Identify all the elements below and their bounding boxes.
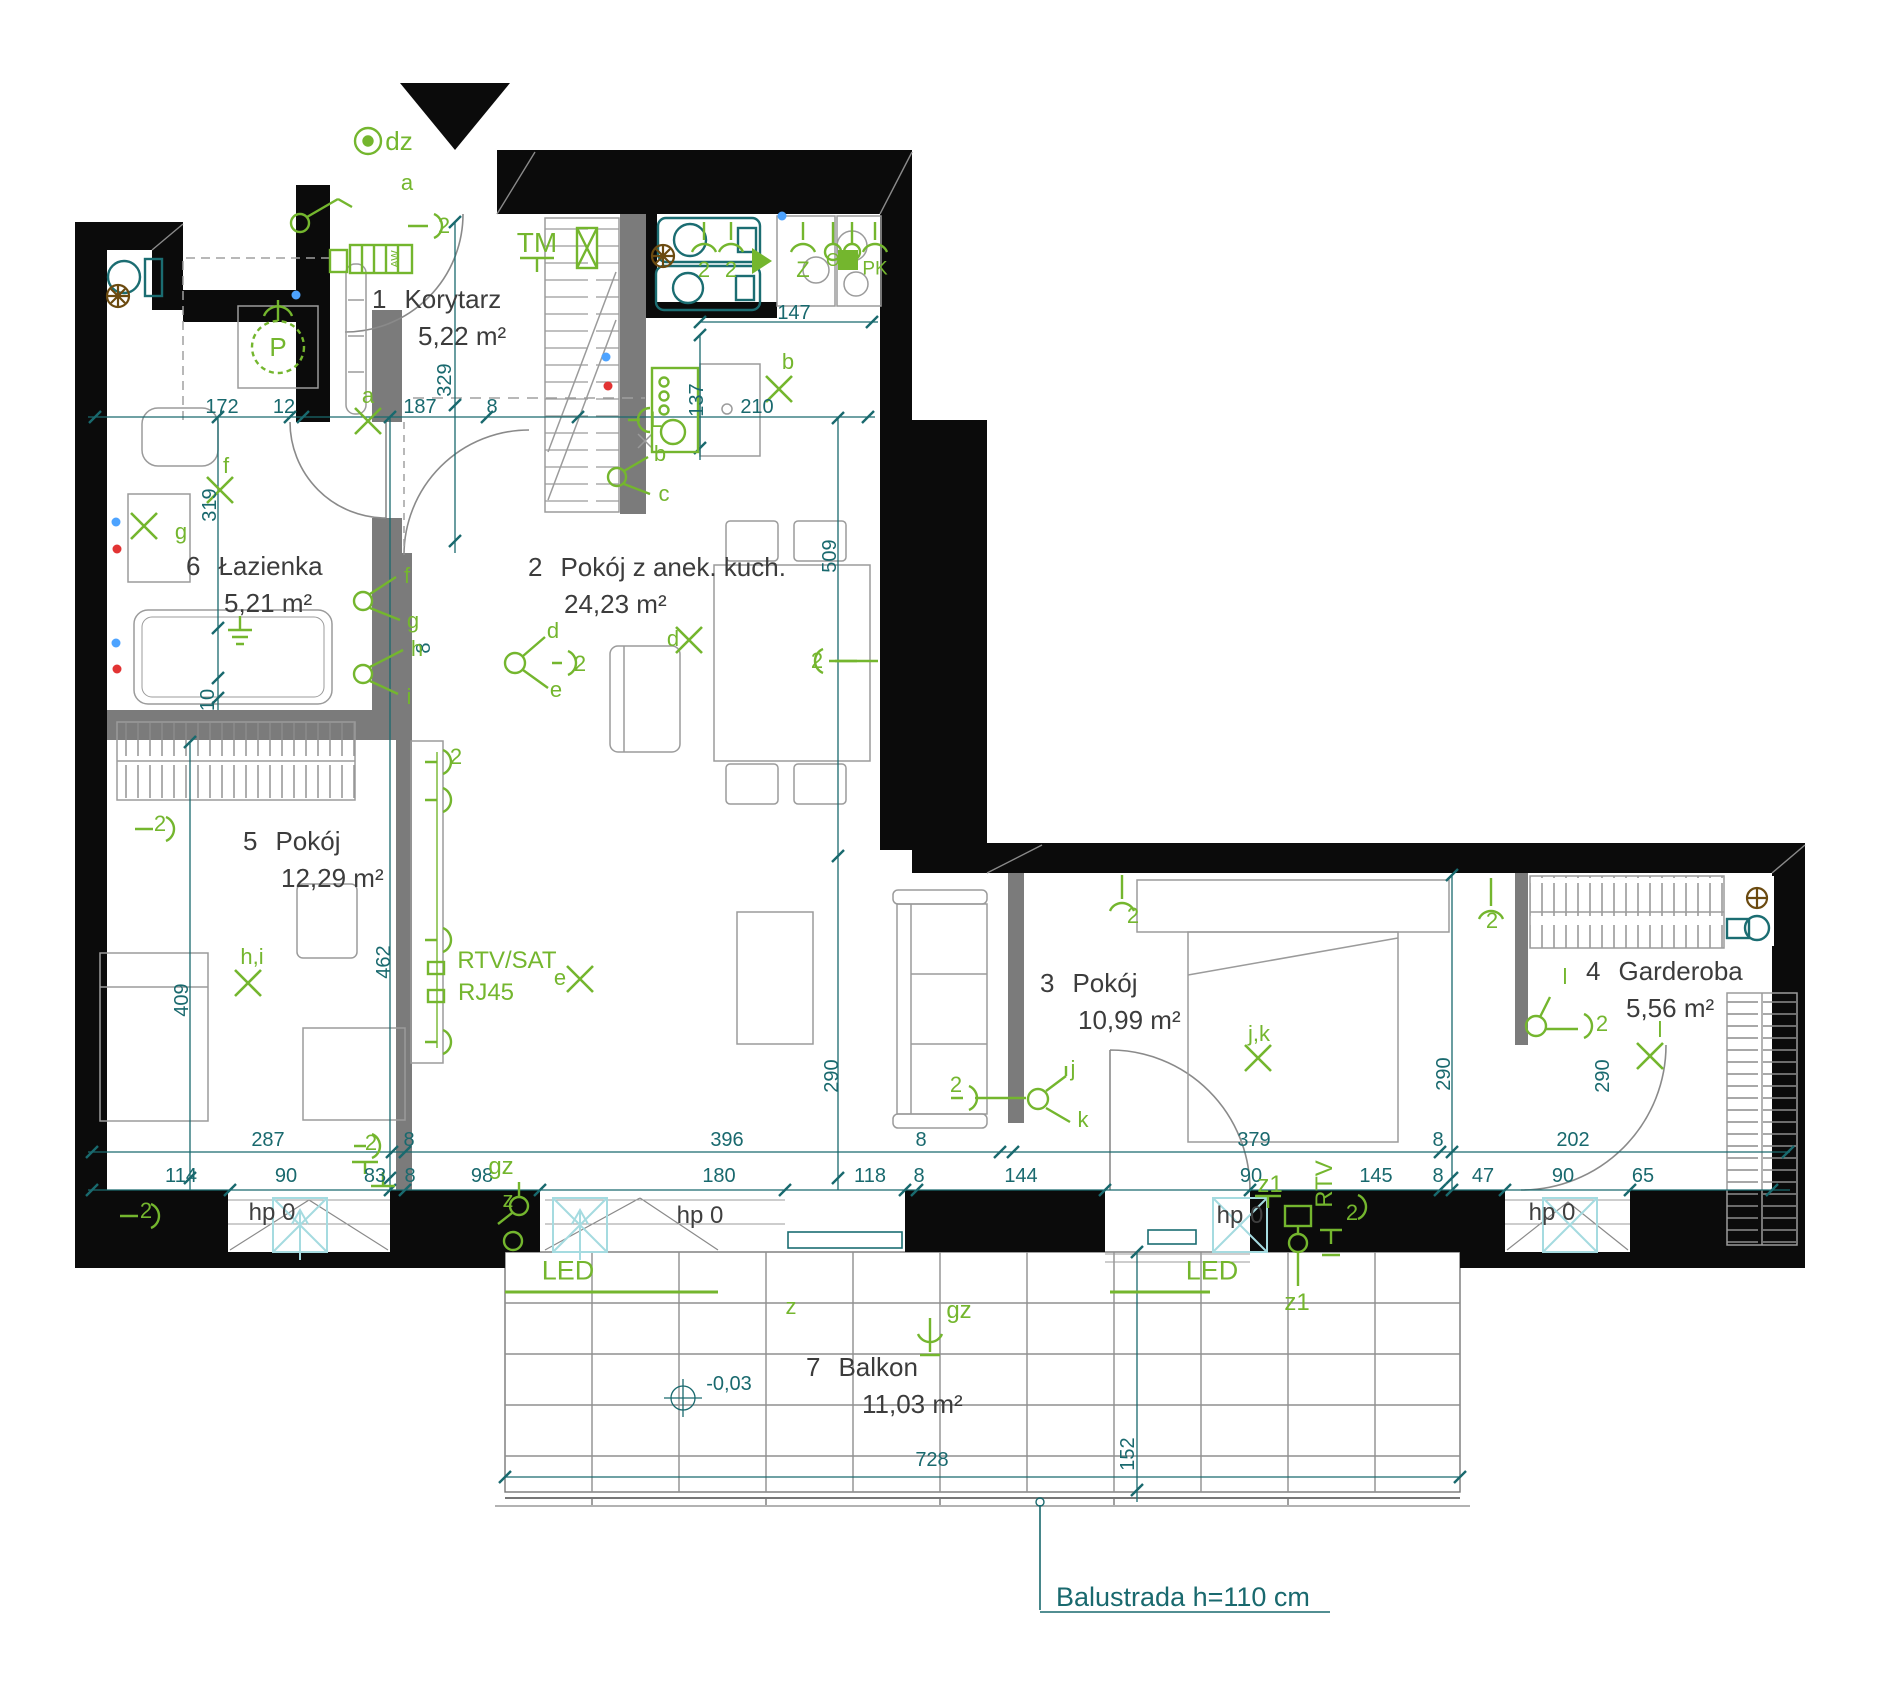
electrical-marker-label: b	[782, 351, 794, 373]
electrical-marker-label: z1	[1284, 1291, 1309, 1315]
room-label-garderoba: 4Garderoba 5,56 m²	[1586, 956, 1743, 1024]
dimension-label: 329	[435, 363, 455, 396]
electrical-marker-label: b	[654, 443, 666, 465]
room-number: 3	[1040, 968, 1054, 999]
electrical-marker-label: RTV	[1313, 1160, 1337, 1208]
electrical-marker-label: g	[175, 521, 187, 543]
electrical-marker-label: h	[411, 638, 423, 660]
electrical-marker-label: K	[846, 251, 858, 269]
electrical-marker-label: i	[407, 686, 412, 708]
dimension-label: 8	[1432, 1166, 1443, 1186]
dimension-label: 145	[1359, 1166, 1392, 1186]
room-area: 12,29 m²	[243, 863, 384, 894]
dimension-label: 180	[702, 1166, 735, 1186]
dimension-label: 12	[273, 397, 295, 417]
electrical-marker-label: 2	[811, 650, 823, 672]
electrical-marker-label: 2	[1127, 905, 1139, 927]
electrical-marker-label: L	[650, 409, 662, 431]
electrical-marker-label: 2	[450, 746, 462, 768]
electrical-marker-label: gz	[488, 1155, 513, 1179]
electrical-marker-label: d	[547, 620, 559, 642]
dimension-label: 10	[198, 689, 218, 711]
electrical-marker-label: e	[554, 967, 566, 989]
dimension-label: 287	[251, 1130, 284, 1150]
electrical-marker-label: f	[223, 455, 229, 477]
dimension-label: 118	[854, 1166, 886, 1186]
dimension-label: -0,03	[706, 1374, 752, 1394]
electrical-marker-label: O	[826, 251, 840, 269]
electrical-marker-label: a	[362, 385, 374, 407]
dimension-label: 144	[1004, 1166, 1037, 1186]
electrical-marker-label: 2	[365, 1132, 377, 1154]
labels-layer: 1Korytarz 5,22 m² 2Pokój z anek. kuch. 2…	[0, 0, 1900, 1685]
electrical-marker-label: 2	[1486, 910, 1498, 932]
window-parapet-label: hp 0	[677, 1204, 724, 1228]
room-label-pokoj-5: 5Pokój 12,29 m²	[243, 826, 384, 894]
room-name: Garderoba	[1618, 956, 1742, 987]
room-area: 5,21 m²	[186, 588, 323, 619]
dimension-label: 83	[364, 1166, 386, 1186]
room-number: 1	[372, 284, 386, 315]
electrical-marker-label: P	[269, 334, 286, 360]
room-name: Łazienka	[218, 551, 322, 582]
dimension-label: 137	[687, 383, 707, 416]
dimension-label: 147	[777, 303, 810, 323]
dimension-label: 90	[275, 1166, 297, 1186]
electrical-marker-label: g	[407, 610, 419, 632]
room-label-lazienka: 6Łazienka 5,21 m²	[186, 551, 323, 619]
electrical-marker-label: z	[503, 1189, 514, 1211]
dimension-label: 319	[200, 488, 220, 521]
room-number: 5	[243, 826, 257, 857]
electrical-marker-label: z1	[1257, 1173, 1282, 1197]
electrical-marker-label: l	[1658, 1019, 1663, 1041]
electrical-marker-label: f	[404, 565, 410, 587]
dimension-label: 90	[1552, 1166, 1574, 1186]
dimension-label: 152	[1118, 1437, 1138, 1470]
dimension-label: 210	[740, 397, 773, 417]
window-parapet-label: hp 0	[1529, 1201, 1576, 1225]
electrical-marker-label: dz	[385, 128, 412, 154]
electrical-marker-label: j	[1071, 1058, 1076, 1080]
dimension-label: 462	[374, 945, 394, 978]
electrical-marker-label: l	[1563, 966, 1568, 988]
room-label-balkon: 7Balkon 11,03 m²	[806, 1352, 963, 1420]
room-name: Korytarz	[404, 284, 501, 315]
electrical-marker-label: RJ45	[458, 981, 514, 1005]
electrical-marker-label: RTV/SAT	[457, 949, 556, 973]
window-parapet-label: hp 0	[1217, 1204, 1264, 1228]
electrical-marker-label: 2	[140, 1200, 152, 1222]
balustrade-annotation: Balustrada h=110 cm	[1056, 1582, 1310, 1613]
dimension-label: 290	[822, 1059, 842, 1092]
dimension-label: 509	[820, 539, 840, 572]
dimension-label: 8	[915, 1130, 926, 1150]
electrical-marker-label: z	[786, 1296, 797, 1318]
electrical-marker-label: 2	[725, 259, 737, 281]
dimension-label: 8	[404, 1166, 415, 1186]
room-name: Pokój	[1072, 968, 1137, 999]
dimension-label: 114	[165, 1166, 197, 1186]
room-area: 24,23 m²	[528, 589, 786, 620]
room-area: 5,22 m²	[372, 321, 506, 352]
room-area: 5,56 m²	[1586, 993, 1743, 1024]
electrical-marker-label: 2	[438, 215, 450, 237]
electrical-marker-label: c	[659, 483, 670, 505]
electrical-marker-label: Z	[796, 259, 809, 281]
dimension-label: 379	[1237, 1130, 1270, 1150]
electrical-marker-label: 2	[1596, 1013, 1608, 1035]
dimension-label: 409	[172, 983, 192, 1016]
room-number: 7	[806, 1352, 820, 1383]
electrical-marker-label: 2	[698, 259, 710, 281]
electrical-marker-label: h,i	[240, 946, 263, 968]
dimension-label: 8	[1432, 1130, 1443, 1150]
dimension-label: 172	[205, 397, 238, 417]
electrical-marker-label: a	[401, 172, 413, 194]
room-name: Balkon	[838, 1352, 918, 1383]
room-number: 4	[1586, 956, 1600, 987]
room-label-pokoj-3: 3Pokój 10,99 m²	[1040, 968, 1181, 1036]
dimension-label: 8	[486, 397, 497, 417]
electrical-marker-label: gz	[946, 1299, 971, 1323]
electrical-marker-label: d	[667, 628, 679, 650]
window-parapet-label: hp 0	[249, 1201, 296, 1225]
room-name: Pokój z anek. kuch.	[560, 552, 785, 583]
dimension-label: 728	[915, 1450, 948, 1470]
dimension-label: 290	[1593, 1059, 1613, 1092]
room-area: 10,99 m²	[1040, 1005, 1181, 1036]
electrical-marker-label: j,k	[1248, 1023, 1270, 1045]
dimension-label: 8	[403, 1130, 414, 1150]
electrical-marker-label: PK	[862, 260, 887, 279]
electrical-marker-label: LED	[542, 1258, 595, 1285]
electrical-marker-label: AW	[391, 250, 402, 267]
dimension-label: 290	[1434, 1057, 1454, 1090]
electrical-marker-label: e	[550, 679, 562, 701]
dimension-label: 396	[710, 1130, 743, 1150]
dimension-label: 8	[913, 1166, 924, 1186]
dimension-label: 47	[1472, 1166, 1494, 1186]
dimension-label: 65	[1632, 1166, 1654, 1186]
electrical-marker-label: 2	[950, 1074, 962, 1096]
electrical-marker-label: k	[1078, 1109, 1089, 1131]
room-name: Pokój	[275, 826, 340, 857]
room-area: 11,03 m²	[806, 1389, 963, 1420]
electrical-marker-label: TM	[517, 229, 557, 257]
dimension-label: 202	[1556, 1130, 1589, 1150]
electrical-marker-label: 2	[574, 653, 586, 675]
dimension-label: 187	[403, 397, 436, 417]
room-label-korytarz: 1Korytarz 5,22 m²	[372, 284, 506, 352]
room-number: 6	[186, 551, 200, 582]
room-label-pokoj-z-aneksem: 2Pokój z anek. kuch. 24,23 m²	[528, 552, 786, 620]
electrical-marker-label: LED	[1186, 1258, 1239, 1285]
floor-plan: 1Korytarz 5,22 m² 2Pokój z anek. kuch. 2…	[0, 0, 1900, 1685]
electrical-marker-label: 2	[1346, 1202, 1358, 1224]
room-number: 2	[528, 552, 542, 583]
electrical-marker-label: 2	[154, 813, 166, 835]
